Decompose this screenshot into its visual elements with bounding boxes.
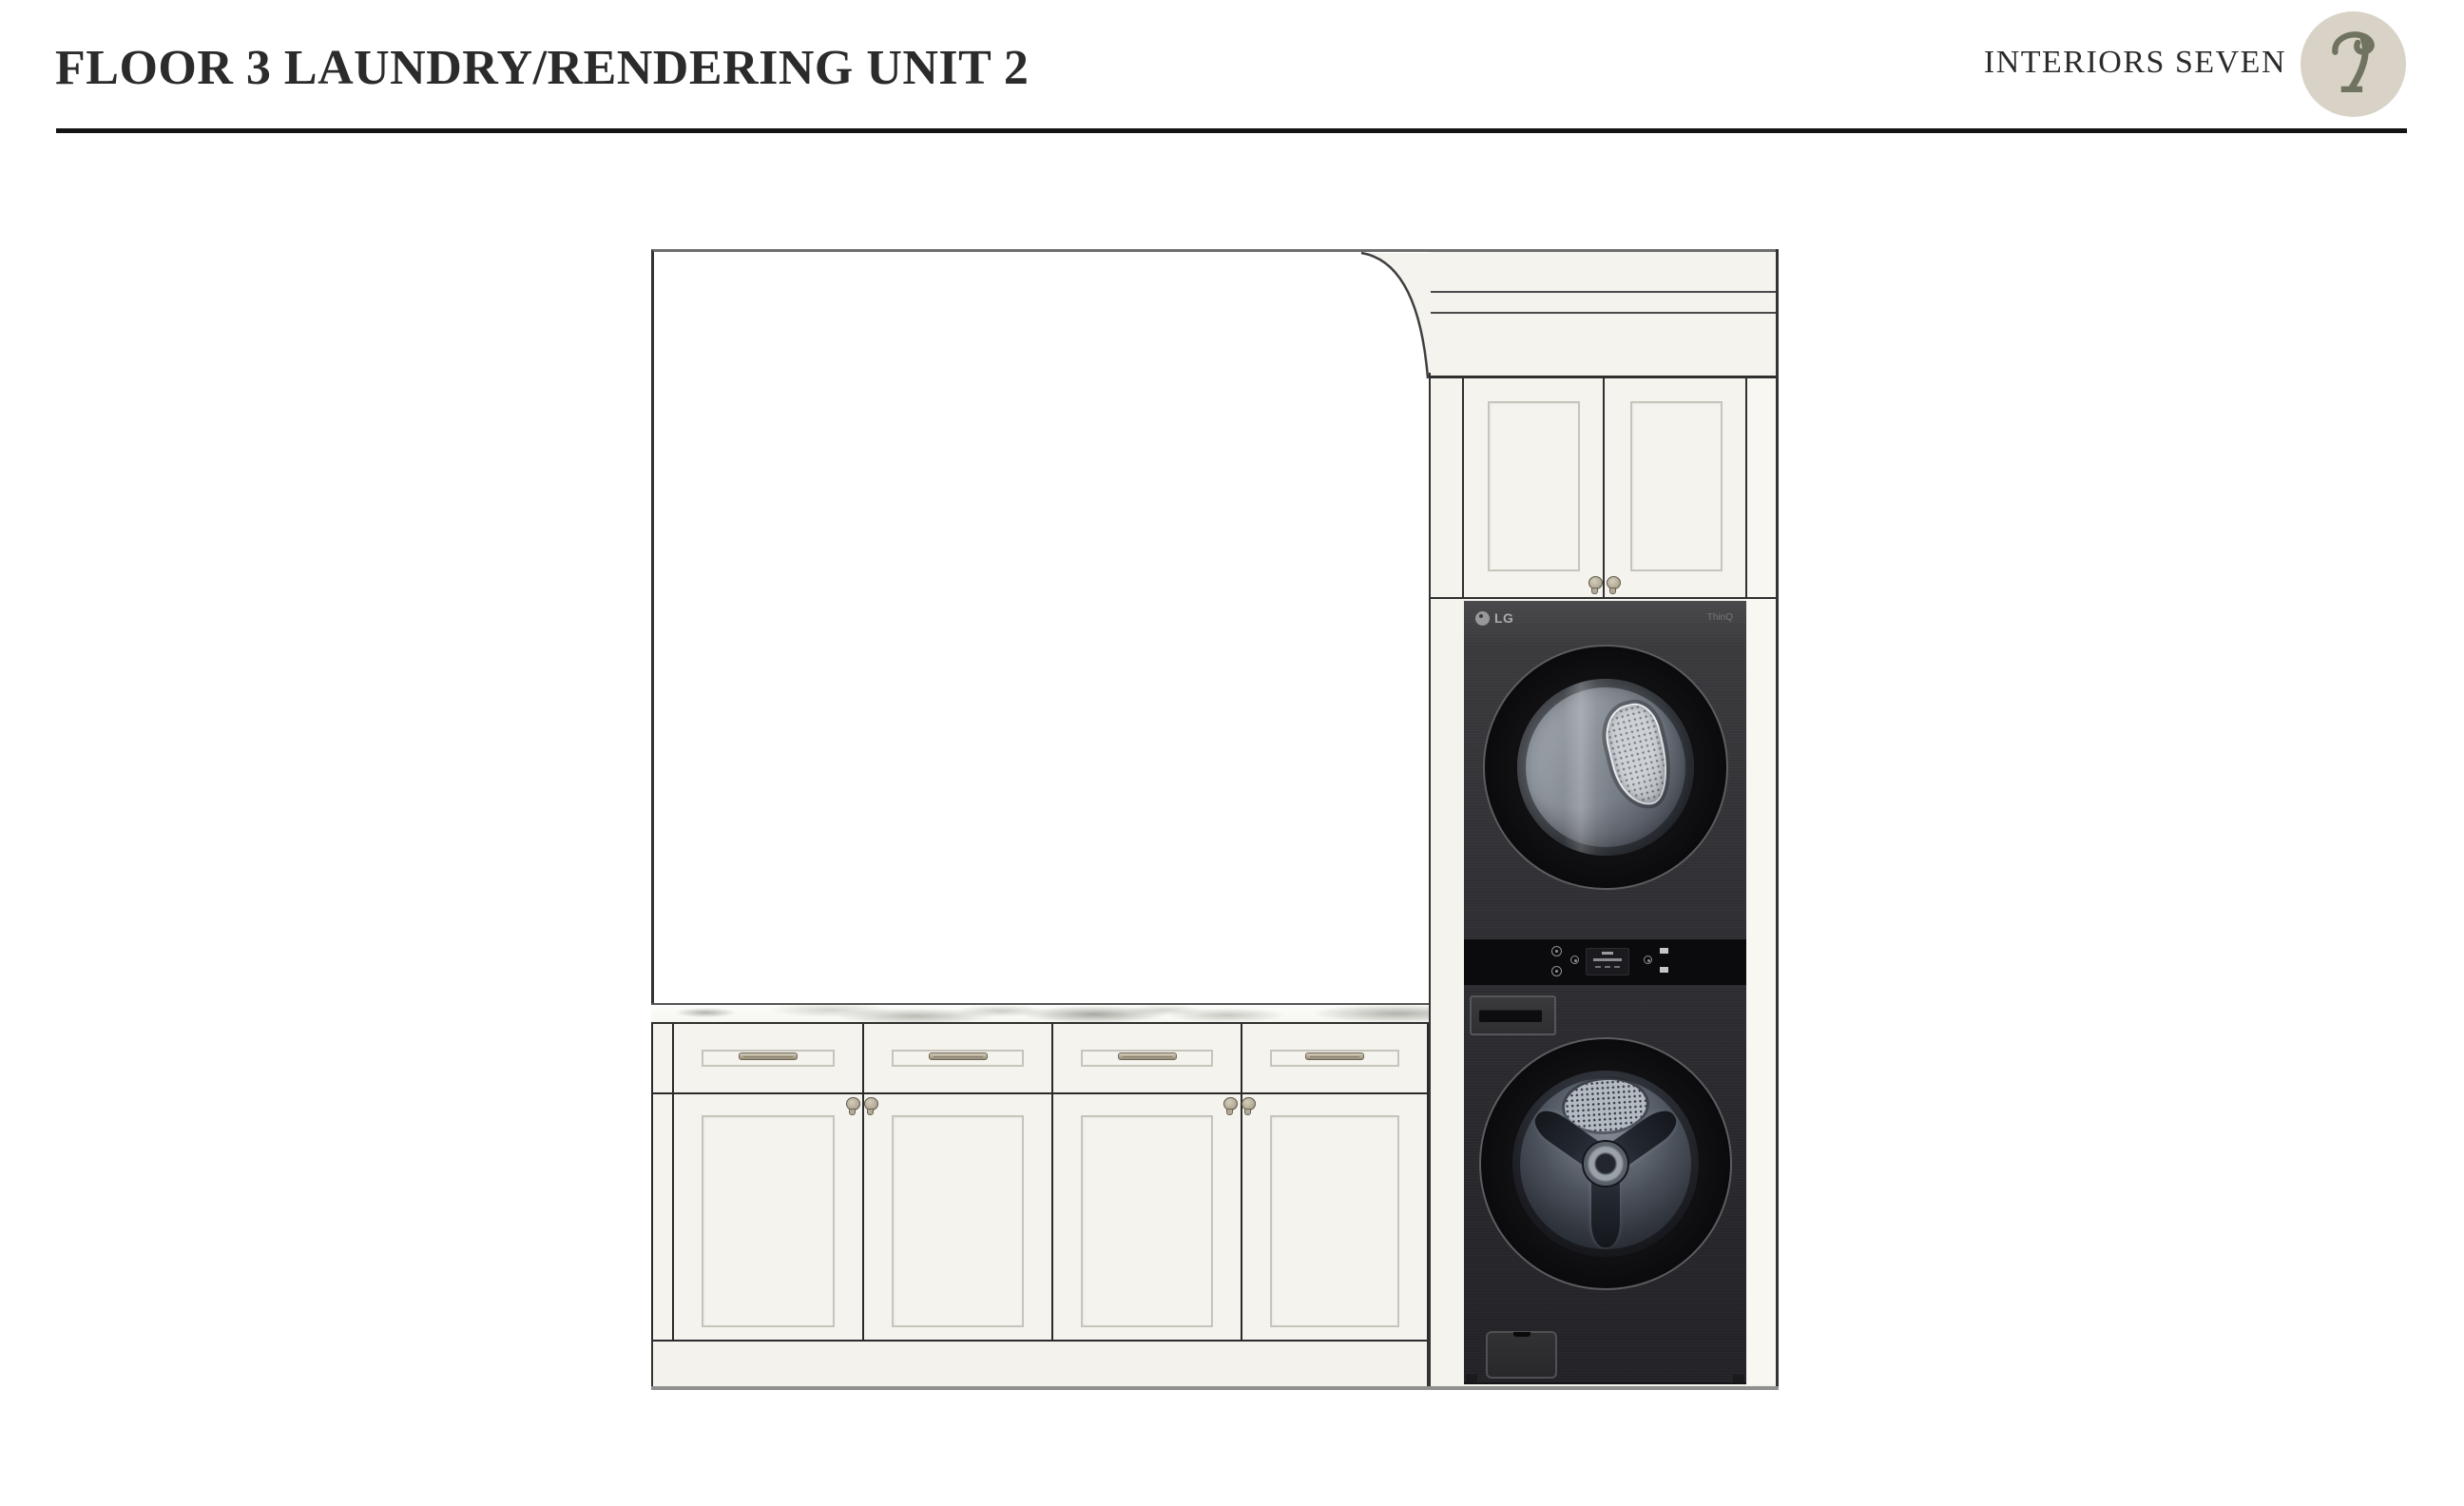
washer-door — [1479, 1037, 1732, 1290]
cycle-button-icon — [1570, 956, 1579, 964]
start-button-icon — [1660, 967, 1668, 973]
cabinet-door-panel — [1270, 1115, 1399, 1327]
washer-drum — [1512, 1071, 1699, 1257]
drawer-pull — [929, 1052, 988, 1060]
tall-cabinet-unit: LG ThinQ — [1429, 249, 1779, 1390]
brand-logo — [2300, 11, 2406, 117]
drum-hub — [1582, 1140, 1629, 1187]
drawer-pull — [1305, 1052, 1364, 1060]
power-button-icon — [1551, 946, 1562, 956]
rendering-page: FLOOR 3 LAUNDRY/RENDERING UNIT 2 INTERIO… — [0, 0, 2464, 1506]
appliance-foot — [1466, 1375, 1477, 1382]
floor-line — [651, 1386, 1429, 1390]
thinq-label: ThinQ — [1707, 612, 1733, 623]
header-rule — [56, 128, 2407, 133]
wall-niche — [651, 249, 1429, 1003]
detergent-dispenser — [1470, 995, 1556, 1035]
door-knob — [1607, 576, 1621, 596]
lg-logo: LG — [1475, 610, 1513, 626]
base-cabinet-bay — [1053, 1024, 1241, 1340]
appliance-foot — [1733, 1375, 1744, 1382]
base-cabinet-bay — [1242, 1024, 1427, 1340]
door-knob — [1588, 576, 1603, 596]
dryer-door — [1483, 645, 1728, 890]
option-button-icon — [1644, 956, 1652, 964]
crown-molding-line — [1431, 291, 1776, 293]
crown-molding-line — [1431, 312, 1776, 314]
lg-logo-text: LG — [1494, 610, 1513, 626]
floor-line — [1429, 1386, 1779, 1390]
cove-corner-curve — [1357, 247, 1432, 380]
base-cabinet-bay — [674, 1024, 862, 1340]
upper-cabinet-door-panel — [1630, 401, 1723, 571]
drawer-pull — [1118, 1052, 1177, 1060]
page-title: FLOOR 3 LAUNDRY/RENDERING UNIT 2 — [55, 40, 1029, 96]
drain-access-panel — [1486, 1331, 1557, 1379]
upper-cabinet-door-panel — [1488, 401, 1580, 571]
door-knob — [1223, 1097, 1238, 1117]
door-knob — [1242, 1097, 1256, 1117]
start-button-icon — [1660, 948, 1668, 954]
base-cabinet-bay — [864, 1024, 1051, 1340]
power-button-icon — [1551, 966, 1562, 976]
door-knob — [864, 1097, 878, 1117]
lg-logo-icon — [1475, 611, 1490, 626]
display-screen — [1586, 948, 1629, 975]
brand-name: INTERIORS SEVEN — [1984, 45, 2286, 81]
lint-filter — [1599, 699, 1677, 812]
lg-washtower: LG ThinQ — [1464, 601, 1746, 1384]
drawer-pull — [739, 1052, 798, 1060]
cabinet-door-panel — [1081, 1115, 1213, 1327]
door-knob — [846, 1097, 860, 1117]
base-cabinet-run — [651, 1003, 1429, 1390]
toe-kick — [651, 1340, 1429, 1386]
cabinet-door-panel — [702, 1115, 835, 1327]
base-cabinet-face — [651, 1024, 1429, 1340]
control-panel — [1464, 939, 1746, 985]
dryer-drum — [1517, 679, 1694, 856]
logo-i7-icon — [2320, 26, 2387, 104]
marble-countertop — [651, 1005, 1429, 1022]
cabinet-door-panel — [892, 1115, 1024, 1327]
side-filler-panel — [1747, 378, 1776, 1384]
